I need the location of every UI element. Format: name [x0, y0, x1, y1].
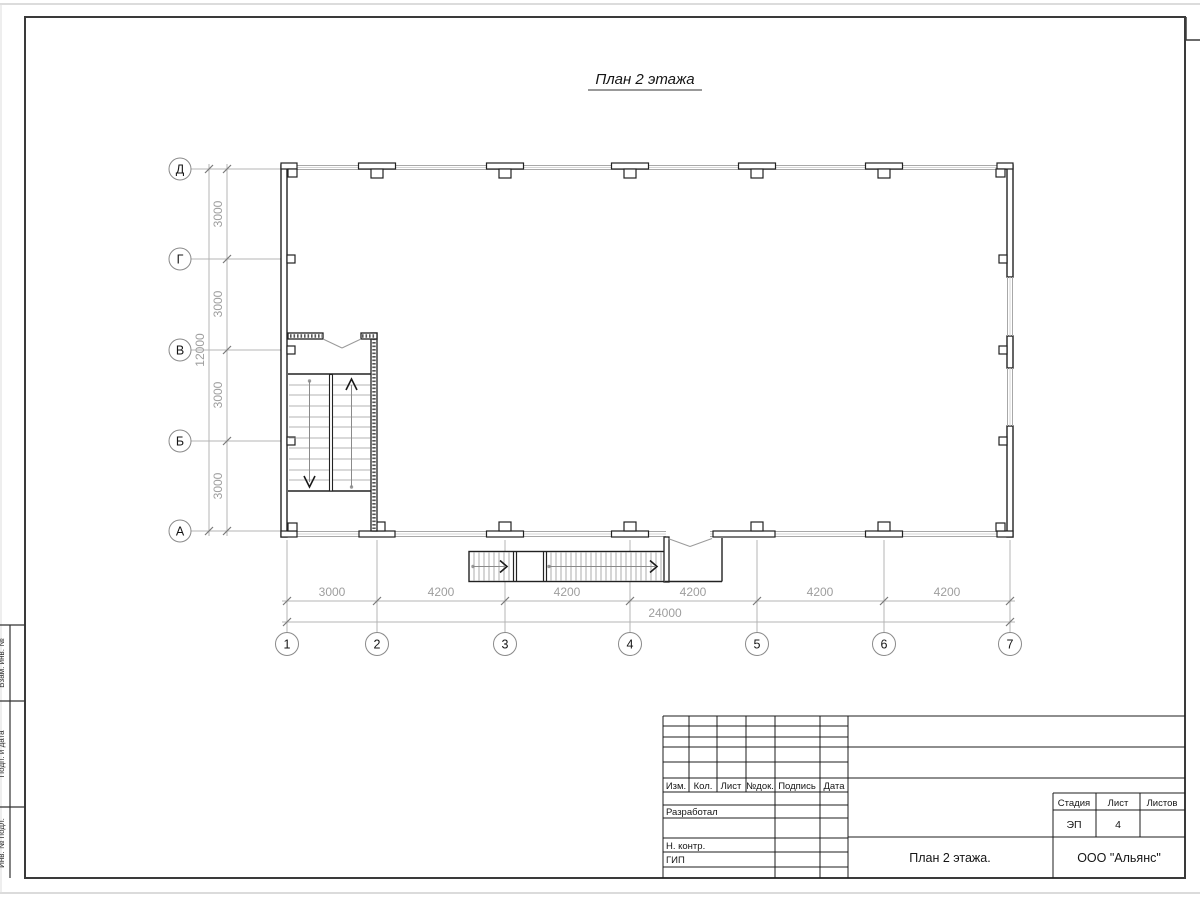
tb-stage-header: Стадия — [1058, 798, 1090, 809]
page-title: План 2 этажа — [595, 71, 694, 88]
dim-bottom-1: 3000 — [319, 585, 346, 599]
dim-bottom-3: 4200 — [554, 585, 581, 599]
dim-left-total: 12000 — [193, 333, 207, 367]
title-block-texts: Изм. Кол. Лист №док. Подпись Дата Разраб… — [666, 781, 1178, 866]
tb-role-developed: Разработал — [666, 807, 718, 818]
corner-columns — [281, 163, 1013, 537]
tb-sheet-header: Лист — [1108, 798, 1129, 809]
side-label-podp: Подп. и дата — [0, 730, 6, 778]
right-wall — [1007, 165, 1013, 537]
dim-bottom-2: 4200 — [428, 585, 455, 599]
side-label-vzam: Взам. инв. № — [0, 638, 6, 688]
axis-label-d: Д — [176, 163, 185, 177]
exterior-stair — [469, 537, 722, 582]
dim-left-2: 3000 — [211, 290, 225, 317]
title-block: Изм. Кол. Лист №док. Подпись Дата Разраб… — [663, 716, 1185, 878]
dim-left-4: 3000 — [211, 472, 225, 499]
side-label-inv: Инв. № подл. — [0, 818, 6, 868]
tb-header-list: Лист — [721, 781, 742, 792]
dim-bottom-5: 4200 — [807, 585, 834, 599]
wall-pilaster-squares — [287, 255, 1007, 445]
dim-bottom-6: 4200 — [934, 585, 961, 599]
tb-stage-value: ЭП — [1066, 819, 1081, 831]
column-axis-bubbles: 1 2 3 4 5 6 7 — [276, 633, 1022, 656]
axis-label-5: 5 — [754, 638, 761, 652]
dim-bottom-total: 24000 — [648, 606, 682, 620]
interior-staircase — [288, 374, 371, 491]
axis-label-7: 7 — [1007, 638, 1014, 652]
row-axis-bubbles: Д Г В Б А — [169, 158, 191, 542]
tb-role-gip: ГИП — [666, 855, 685, 866]
axis-label-g: Г — [177, 253, 184, 267]
axis-label-4: 4 — [627, 638, 634, 652]
sheet-title: План 2 этажа — [588, 71, 702, 90]
corner-stamp-box — [1186, 17, 1200, 40]
axis-label-1: 1 — [284, 638, 291, 652]
tb-company: ООО "Альянс" — [1077, 851, 1161, 865]
axis-label-2: 2 — [374, 638, 381, 652]
axis-label-v: В — [176, 344, 184, 358]
tb-document-title: План 2 этажа. — [909, 851, 990, 865]
dim-bottom-4: 4200 — [680, 585, 707, 599]
bottom-pilasters — [359, 522, 903, 537]
entry-door-leaves — [668, 539, 712, 547]
floor-plan-sheet: Взам. инв. № Подп. и дата Инв. № подл. П… — [0, 0, 1200, 900]
entry-landing — [664, 537, 722, 582]
tb-role-ncontr: Н. контр. — [666, 841, 705, 852]
vestibule-door-leaves — [323, 339, 361, 348]
building-plan — [281, 163, 1013, 537]
tb-header-podpis: Подпись — [778, 781, 816, 792]
tb-header-doc: №док. — [746, 781, 774, 792]
tb-header-izm: Изм. — [666, 781, 686, 792]
axis-label-a: А — [176, 525, 185, 539]
left-wall — [281, 165, 287, 537]
tb-header-data: Дата — [823, 781, 845, 792]
dim-left-1: 3000 — [211, 200, 225, 227]
dim-left-3: 3000 — [211, 381, 225, 408]
tb-sheet-value: 4 — [1115, 819, 1121, 831]
axis-label-3: 3 — [502, 638, 509, 652]
tb-header-kol: Кол. — [694, 781, 713, 792]
tb-sheets-header: Листов — [1147, 798, 1178, 809]
axis-label-b: Б — [176, 435, 184, 449]
axis-label-6: 6 — [881, 638, 888, 652]
